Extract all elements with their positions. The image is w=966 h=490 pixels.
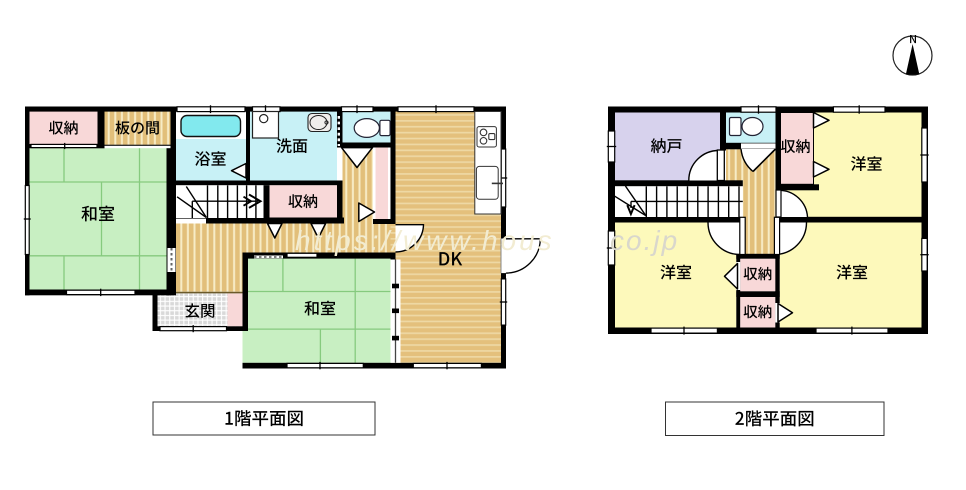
- svg-text:https://www.hous: https://www.hous: [295, 225, 555, 256]
- svg-text:co.jp: co.jp: [610, 225, 679, 256]
